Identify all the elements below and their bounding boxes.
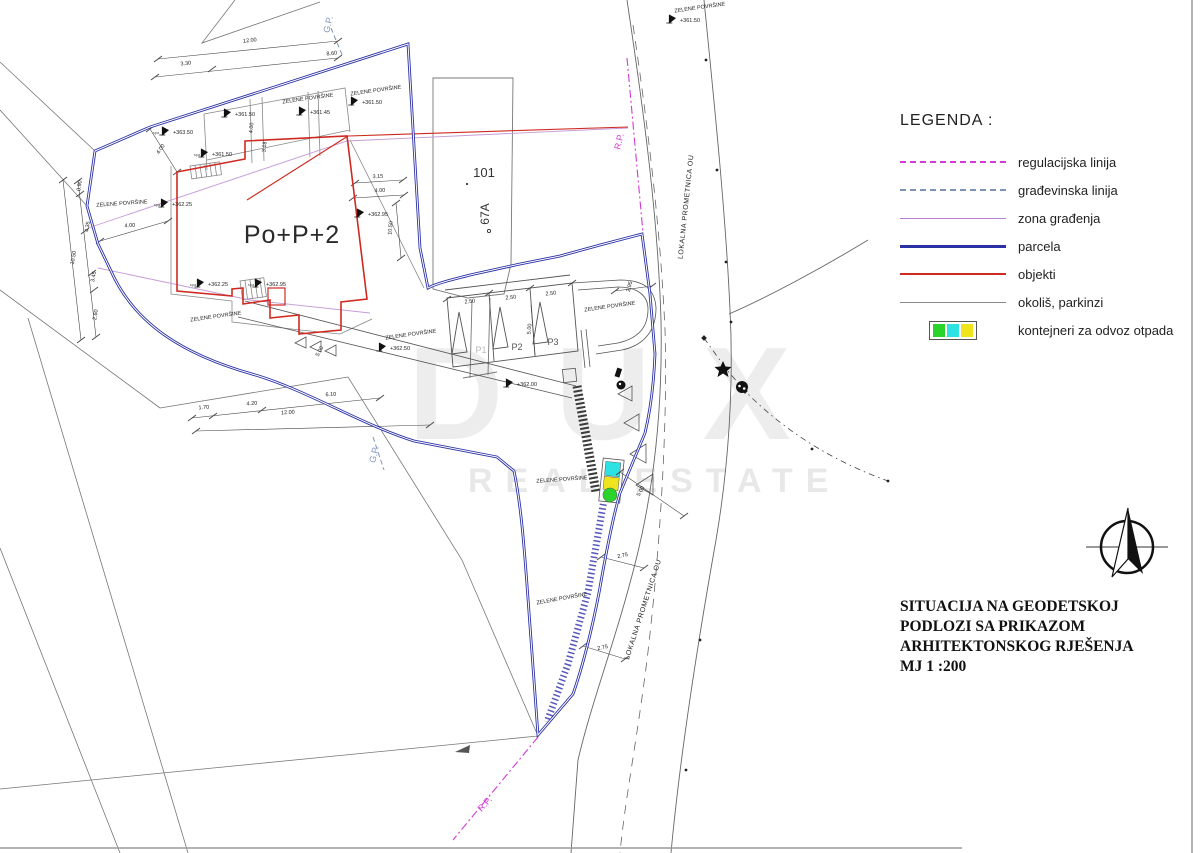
dim-line <box>63 180 96 340</box>
valve-dot <box>619 383 621 385</box>
road-branch <box>729 240 868 314</box>
stall-triangle <box>493 307 508 349</box>
plot-number: 101 <box>473 165 495 180</box>
terrain-line <box>202 0 320 43</box>
parking-stall-label: P3 <box>547 337 558 347</box>
stall-triangle <box>452 312 467 354</box>
legend-item-label: parcela <box>1018 239 1061 254</box>
dimension-label: 4.00 <box>249 122 256 133</box>
survey-point <box>730 321 733 324</box>
red-line-icon <box>900 273 1006 275</box>
dimension-label: 12.00 <box>281 410 295 417</box>
legend-item-label: regulacijska linija <box>1018 155 1116 170</box>
elevation-label: +362.25 <box>172 202 192 208</box>
legend-line-swatch <box>900 161 1006 163</box>
green-area-label: ZELENE POVRŠINE <box>536 474 588 485</box>
container-swatch-cell <box>933 324 945 337</box>
elevation-label: +362.50 <box>390 346 410 352</box>
legend-line-swatch <box>900 218 1006 219</box>
survey-point <box>716 169 719 172</box>
neighbor-building <box>433 78 513 378</box>
legend-item: objekti <box>900 260 1190 288</box>
platform-edge <box>572 280 656 354</box>
dimension-label: 1.70 <box>198 405 209 412</box>
container-cyan <box>604 461 620 476</box>
building-label: Po+P+2 <box>244 221 340 249</box>
building-line-label: G.P. <box>321 15 335 34</box>
parking-stall-label: P1 <box>475 345 486 355</box>
stall-triangle <box>533 302 548 344</box>
survey-point <box>701 335 707 341</box>
elevation-marker-icon <box>376 343 385 351</box>
legend-item-label: objekti <box>1018 267 1056 282</box>
container-swatch-cell <box>947 324 959 337</box>
blue-line-icon <box>900 245 1006 248</box>
elevation-label: +361.50 <box>212 152 232 158</box>
elevation-label: +363.50 <box>173 130 193 136</box>
parcel-boundary <box>87 44 655 735</box>
elevation-label: +362.25 <box>208 282 228 288</box>
legend-item-label: zona građenja <box>1018 211 1100 226</box>
point-marker <box>487 229 490 232</box>
direction-triangle <box>618 386 653 495</box>
survey-point <box>699 639 702 642</box>
dim-line <box>155 41 338 77</box>
zone-line <box>98 268 370 313</box>
dim-line <box>100 129 177 241</box>
dimension-label: 10.50 <box>387 221 394 235</box>
legend-item: zona građenja <box>900 204 1190 232</box>
bench-note: spa <box>154 202 161 207</box>
green-area-label: ZELENE POVRŠINE <box>350 83 402 97</box>
dimension-label: 4.20 <box>246 401 257 408</box>
dimension-label: 2.75 <box>597 644 609 652</box>
elevation-label: +362.95 <box>368 212 388 218</box>
survey-point <box>705 59 708 62</box>
dimension-label: 2.50 <box>505 295 516 302</box>
bench-note: spa <box>153 130 160 135</box>
terrain-line <box>28 318 188 853</box>
green-area-label: ZELENE POVRŠINE <box>674 0 726 14</box>
green-area-label: ZELENE POVRŠINE <box>96 198 148 209</box>
star-symbol-icon <box>715 361 732 377</box>
title-block-line: SITUACIJA NA GEODETSKOJ <box>900 597 1190 617</box>
elevation-label: +361.50 <box>235 112 255 118</box>
rp-line <box>627 58 643 233</box>
elevation-label: +362.95 <box>266 282 286 288</box>
dimension-label: 2.50 <box>545 291 556 298</box>
legend-item: regulacijska linija <box>900 148 1190 176</box>
compass-needle-fill <box>1128 508 1143 574</box>
road-label: LOKALNA PROMETNICA OU <box>678 154 696 259</box>
site-plan-page: DUX REAL ESTATE <box>0 0 1200 853</box>
container-swatch-cell <box>961 324 973 337</box>
elevation-marker-icon <box>296 107 305 115</box>
waste-containers-icon <box>900 321 1006 340</box>
green-area-label: ZELENE POVRŠINE <box>190 309 242 323</box>
manhole-icon <box>736 381 748 393</box>
road-edge <box>671 0 731 853</box>
terrain-line <box>0 62 95 151</box>
building-surround <box>171 166 232 301</box>
dimension-label: 4.00 <box>124 223 135 230</box>
dimension-label: 12.00 <box>243 37 257 44</box>
dimension-label: 10.50 <box>70 251 78 266</box>
dimension-label: 4.35 <box>84 221 92 233</box>
building-line-label: G.P. <box>367 445 381 464</box>
parcel-line <box>87 44 655 735</box>
dimension-label: 2.75 <box>617 552 629 560</box>
dimension-label: 4.00 <box>374 188 385 195</box>
bench-note: spa <box>194 152 201 157</box>
regulation-line-label: R.P. <box>476 795 494 814</box>
legend-title: LEGENDA : <box>900 112 1190 130</box>
survey-points <box>685 59 890 772</box>
dimension-label: 3.30 <box>180 60 191 67</box>
dimension-label: 3.15 <box>372 174 383 181</box>
neighbor-building-outline <box>433 78 513 298</box>
legend-item: parcela <box>900 232 1190 260</box>
dimension-label: 3.18 <box>262 141 269 152</box>
wall-pair <box>581 329 590 368</box>
dim-line <box>192 398 430 431</box>
legend-line-swatch <box>900 245 1006 248</box>
dimension-label: 4.00 <box>156 143 167 155</box>
title-block-line: ARHITEKTONSKOG RJEŠENJA <box>900 637 1190 657</box>
dimension-label: 0.90 <box>76 180 84 192</box>
platform-edge-inner <box>578 287 648 346</box>
containers-swatch <box>929 321 977 340</box>
dimension-label: 5.00 <box>636 485 647 497</box>
north-arrow <box>1086 508 1168 577</box>
legend-line-swatch <box>900 189 1006 191</box>
elevation-label: +361.50 <box>680 18 700 24</box>
plot-number: 67A <box>478 203 492 224</box>
magenta-dashed-line-icon <box>900 161 1006 163</box>
regulation-line-label: R.P. <box>612 132 625 150</box>
elevation-label: +361.50 <box>362 100 382 106</box>
elevation-marker-icon <box>666 15 675 23</box>
parcel-line-core <box>87 44 655 735</box>
gray-line-icon <box>900 302 1006 303</box>
legend-item: okoliš, parkinzi <box>900 288 1190 316</box>
legend-item: kontejneri za odvoz otpada <box>900 316 1190 344</box>
dimension-label: 5.00 <box>315 345 325 357</box>
title-block-line: MJ 1 :200 <box>900 657 1190 677</box>
dimension-label: 2.60 <box>92 309 100 321</box>
title-block: SITUACIJA NA GEODETSKOJPODLOZI SA PRIKAZ… <box>900 597 1190 677</box>
legend-item-label: građevinska linija <box>1018 183 1118 198</box>
legend-line-swatch <box>900 273 1006 275</box>
survey-point <box>685 769 688 772</box>
survey-point <box>887 480 890 483</box>
survey-point <box>725 261 728 264</box>
parking-area <box>445 275 578 367</box>
legend-line-swatch <box>900 302 1006 303</box>
bench-note: spa <box>190 282 197 287</box>
terrain-line <box>0 110 87 206</box>
green-area-label: ZELENE POVRŠINE <box>536 591 588 607</box>
road-label: LOKALNA PROMETNICA OU <box>624 558 663 660</box>
stairs <box>240 278 266 300</box>
elevation-label: +362.00 <box>517 382 537 388</box>
terrain-line <box>0 548 120 853</box>
arrowhead <box>455 745 470 753</box>
valve-icon <box>617 381 626 390</box>
dimension-label: 2.95 <box>626 281 635 293</box>
legend: LEGENDA : regulacijska linijagrađevinska… <box>900 112 1190 344</box>
violet-line-icon <box>900 218 1006 219</box>
dimension-label: 6.10 <box>325 392 336 399</box>
terrain-line <box>348 377 538 736</box>
road <box>571 0 889 853</box>
terrain-line <box>0 736 538 789</box>
legend-item: građevinska linija <box>900 176 1190 204</box>
legend-item-label: kontejneri za odvoz otpada <box>1018 323 1173 338</box>
legend-item-label: okoliš, parkinzi <box>1018 295 1103 310</box>
legend-items: regulacijska linijagrađevinska linijazon… <box>900 148 1190 344</box>
dimension-label: 5.00 <box>527 323 534 334</box>
elevation-marker-icon <box>503 379 512 387</box>
terrain-lines <box>0 0 538 853</box>
stair-landing <box>562 368 576 382</box>
elevation-marker-icon <box>348 97 357 105</box>
green-area-label: ZELENE POVRŠINE <box>385 327 437 341</box>
bench-note: spa <box>248 282 255 287</box>
dimension-label: 8.60 <box>326 50 337 57</box>
green-area-label: ZELENE POVRŠINE <box>584 299 636 313</box>
dimension-label: 2.50 <box>464 299 475 306</box>
gray-blue-dashed-line-icon <box>900 189 1006 191</box>
elevation-marker-icon <box>159 127 168 135</box>
point-marker <box>466 183 468 185</box>
elevation-label: +361.45 <box>310 110 330 116</box>
dimension-label: 3.45 <box>90 271 98 283</box>
survey-point <box>811 448 814 451</box>
title-block-line: PODLOZI SA PRIKAZOM <box>900 617 1190 637</box>
site-structures <box>171 88 656 722</box>
hydrant-icon <box>615 368 623 378</box>
parking-stall-label: P2 <box>511 342 522 352</box>
compass-needle-outline <box>1112 508 1128 577</box>
